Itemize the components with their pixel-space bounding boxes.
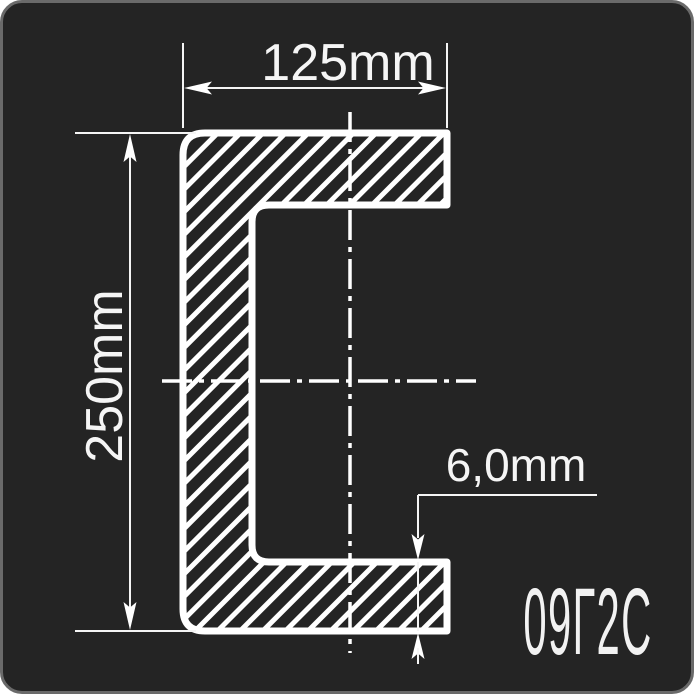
drawing-card: 125mm 250mm 6,0mm 09Г2С	[0, 0, 694, 694]
steel-grade-label: 09Г2С	[523, 569, 652, 675]
dimension-width: 125mm	[183, 34, 447, 128]
channel-drawing: 125mm 250mm 6,0mm 09Г2С	[3, 3, 694, 694]
height-dimension-label: 250mm	[76, 289, 134, 462]
width-dimension-label: 125mm	[261, 34, 434, 92]
thickness-dimension-label: 6,0mm	[446, 439, 587, 491]
